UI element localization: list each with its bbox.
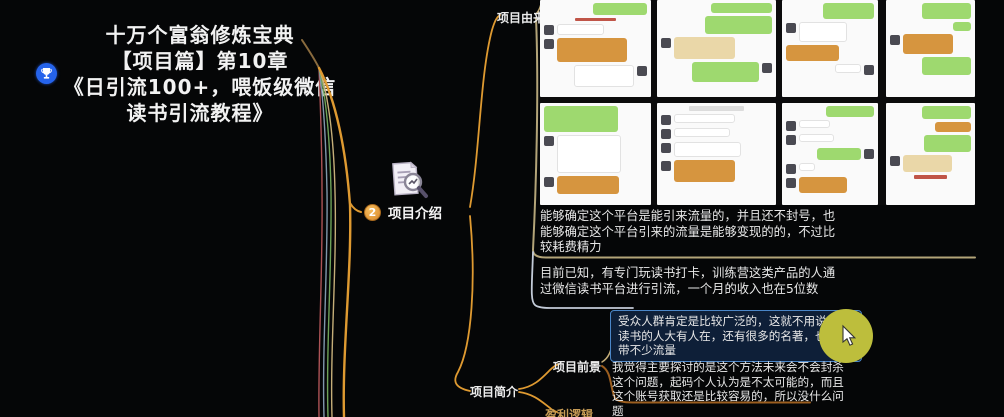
chat-avatar [544, 177, 554, 187]
topic-profit-logic[interactable]: 盈利逻辑 [545, 406, 593, 417]
chat-screenshot-panel [782, 0, 878, 97]
chat-row [544, 106, 647, 132]
chat-row [890, 57, 971, 75]
chat-avatar [786, 23, 796, 33]
chat-row [786, 163, 874, 174]
document-search-icon [384, 160, 430, 206]
chat-bubble-orange [935, 122, 971, 132]
chat-avatar [786, 135, 796, 145]
chat-row [661, 142, 772, 157]
chat-bubble-green [922, 57, 971, 75]
branch-strand [319, 68, 322, 417]
chat-row [544, 3, 647, 15]
branch-trunk [302, 40, 319, 68]
chat-row [661, 16, 772, 34]
chat-avatar [864, 65, 874, 75]
chat-row [786, 45, 874, 61]
chat-avatar [544, 25, 554, 35]
chat-avatar [661, 143, 671, 153]
chat-screenshot-panel [657, 103, 776, 205]
chat-bubble-orange [786, 45, 839, 61]
chat-bubble-green [705, 16, 772, 34]
chat-row [786, 148, 874, 160]
chat-bubble-orange [674, 160, 735, 182]
chat-bubble-green [823, 3, 874, 19]
branch-to-intro [350, 203, 361, 212]
chat-avatar [544, 136, 554, 146]
chat-row [544, 18, 647, 21]
chat-avatar [786, 164, 796, 174]
chat-avatar [661, 161, 671, 171]
chat-row [544, 24, 647, 35]
chat-bubble-white [674, 142, 741, 157]
chat-bubble-white [557, 135, 621, 173]
chat-screenshot-panel [540, 103, 651, 205]
chat-row [890, 122, 971, 132]
chat-bubble-green [924, 135, 971, 152]
topic-project-origin[interactable]: 项目由来 [497, 9, 545, 26]
chat-row [786, 64, 874, 75]
chat-avatar [544, 39, 554, 49]
chat-bubble-green [692, 62, 759, 82]
chat-screenshot-panel [886, 0, 975, 97]
chat-row [661, 128, 772, 139]
chat-bubble-green [817, 148, 861, 160]
chat-avatar [661, 115, 671, 125]
chat-row [786, 134, 874, 145]
chat-row [661, 3, 772, 13]
chat-row [661, 62, 772, 82]
note-audience-selected[interactable]: 受众人群肯定是比较广泛的，这就不用说了，读书的人大有人在，还有很多的名著，也都自… [610, 310, 862, 362]
chat-bubble-white [674, 128, 730, 137]
chat-row [786, 120, 874, 131]
chat-bubble-green [593, 3, 647, 15]
chat-bubble-green [922, 106, 971, 119]
chat-bubble-white [799, 120, 830, 128]
chat-bubble-white [799, 163, 815, 171]
chat-bubble-green [711, 3, 772, 13]
note-platform-traffic[interactable]: 能够确定这个平台是能引来流量的，并且还不封号，也能够确定这个平台引来的流量是能够… [540, 209, 838, 256]
topic-project-summary[interactable]: 项目简介 [470, 383, 518, 400]
chat-bubble-beige [903, 155, 952, 172]
chat-row [544, 135, 647, 173]
chat-row [890, 155, 971, 172]
chat-row [661, 37, 772, 59]
chat-row [786, 22, 874, 42]
chat-bubble-grayline [689, 106, 745, 111]
chat-avatar [890, 35, 900, 45]
chat-row [786, 3, 874, 19]
chat-bubble-orange [903, 34, 953, 54]
chat-avatar [786, 121, 796, 131]
chat-row [544, 65, 647, 87]
chat-avatar [762, 63, 772, 73]
chat-avatar [890, 156, 900, 166]
numbering-badge: 2 [364, 204, 381, 221]
chat-row [890, 34, 971, 54]
chat-bubble-green [953, 22, 971, 31]
chat-avatar [661, 38, 671, 48]
chat-row [661, 160, 772, 182]
chat-avatar [864, 149, 874, 159]
chat-bubble-green [922, 3, 971, 19]
chat-row [890, 106, 971, 119]
chat-bubble-beige [674, 37, 735, 59]
branch-to-origin [470, 15, 500, 207]
chat-avatar [786, 178, 796, 188]
topic-project-intro-label: 项目介绍 [388, 202, 442, 222]
topic-project-prospect[interactable]: 项目前景 [553, 358, 601, 375]
chat-row [890, 175, 971, 179]
chat-row [661, 114, 772, 125]
branch-to-summary [455, 216, 472, 391]
chat-row [544, 38, 647, 62]
chat-bubble-white [799, 22, 847, 42]
chat-bubble-redline [914, 175, 946, 179]
chat-screenshot-panel [782, 103, 878, 205]
chat-bubble-green [544, 106, 618, 132]
note-known-income[interactable]: 目前已知，有专门玩读书打卡，训练营这类产品的人通过微信读书平台进行引流，一个月的… [540, 266, 838, 297]
chat-bubble-white [674, 114, 735, 123]
chat-bubble-white [557, 24, 604, 35]
chat-row [661, 106, 772, 111]
chat-row [890, 135, 971, 152]
chat-row [786, 177, 874, 193]
chat-row [890, 22, 971, 31]
chat-avatar [661, 129, 671, 139]
chat-bubble-white [835, 64, 861, 73]
chat-screenshot-panel [540, 0, 651, 97]
chat-bubble-orange [799, 177, 847, 193]
chat-row [786, 106, 874, 117]
chat-screenshot-panel [886, 103, 975, 205]
note-ban-risk[interactable]: 我觉得主要探讨的是这个方法未来会不会封杀这个问题，起码个人认为是不太可能的，而且… [612, 360, 850, 417]
chat-screenshot-panel [657, 0, 776, 97]
chat-avatar [637, 66, 647, 76]
chat-row [544, 176, 647, 194]
chat-row [890, 3, 971, 19]
mindmap-canvas: 十万个富翁修炼宝典 【项目篇】第10章 《日引流100+，喂饭级微信 读书引流教… [0, 0, 1004, 417]
chat-bubble-orange [557, 38, 627, 62]
chat-bubble-white [574, 65, 634, 87]
topic-project-intro[interactable]: 2 项目介绍 [364, 202, 442, 222]
chat-bubble-orange [557, 176, 619, 194]
chat-bubble-redline [575, 18, 616, 21]
chat-bubble-white [799, 134, 834, 142]
wechat-chat-collage-image[interactable] [540, 0, 975, 205]
chat-bubble-green [826, 106, 874, 117]
